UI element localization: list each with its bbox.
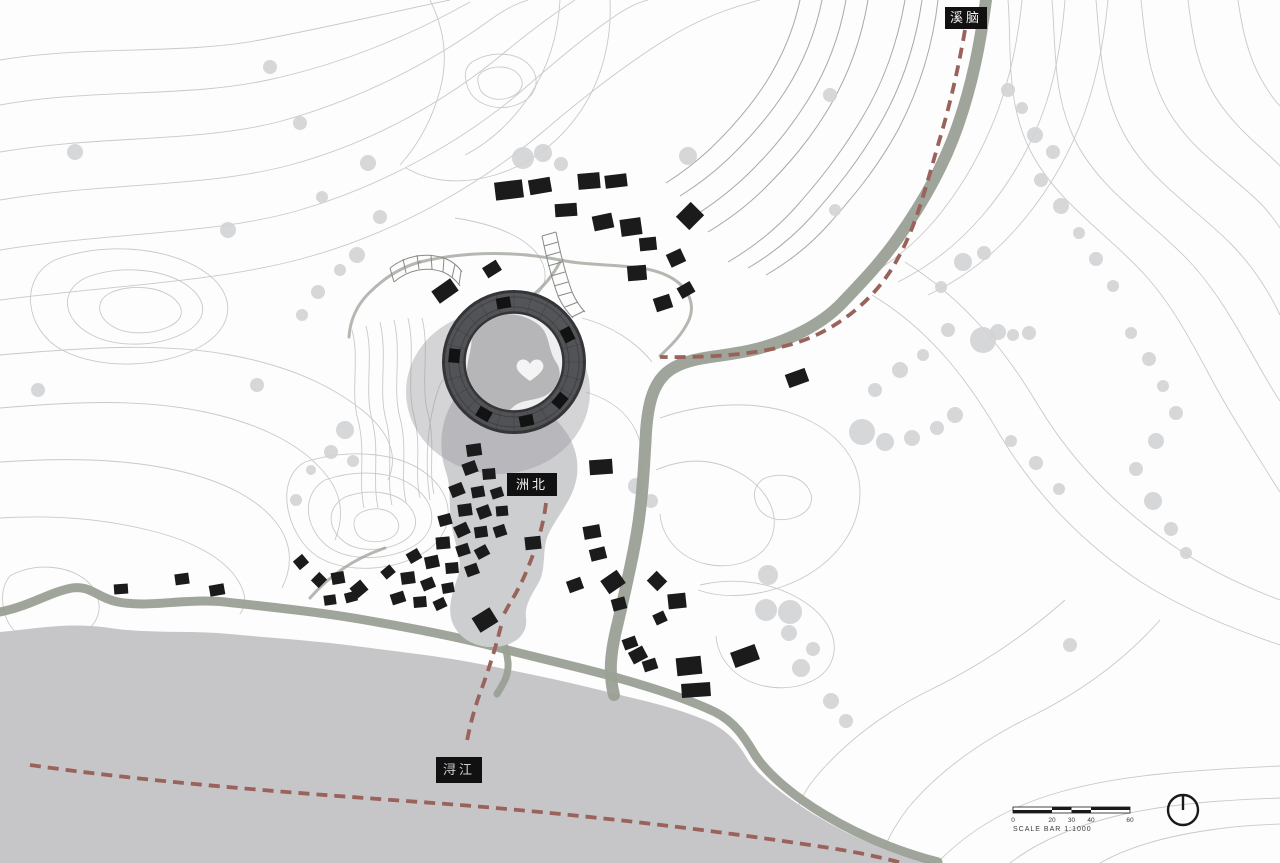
building-footprint bbox=[681, 682, 711, 698]
scalebar-tick: 20 bbox=[1048, 817, 1056, 824]
building-footprint bbox=[627, 265, 647, 282]
building-footprint bbox=[457, 503, 473, 517]
scalebar-segment bbox=[1072, 810, 1092, 813]
tree bbox=[876, 433, 894, 451]
scalebar-segment bbox=[1052, 807, 1072, 810]
building-footprint bbox=[494, 179, 524, 200]
tree bbox=[1063, 638, 1077, 652]
tree bbox=[554, 157, 568, 171]
tree bbox=[1169, 406, 1183, 420]
tree bbox=[1007, 329, 1019, 341]
tree bbox=[758, 565, 778, 585]
tree bbox=[954, 253, 972, 271]
tree bbox=[250, 378, 264, 392]
tree bbox=[31, 383, 45, 397]
tree bbox=[792, 659, 810, 677]
site-plan-page: 溪脑 洲北 浔江 SCALE BAR 1:1000 020304060 bbox=[0, 0, 1280, 863]
scalebar-tick: 40 bbox=[1087, 817, 1095, 824]
building-footprint bbox=[436, 536, 451, 549]
building-footprint bbox=[466, 443, 483, 457]
tree bbox=[904, 430, 920, 446]
building-footprint bbox=[555, 203, 578, 218]
tree bbox=[1005, 435, 1017, 447]
tree bbox=[917, 349, 929, 361]
building-footprint bbox=[331, 571, 346, 585]
building-footprint bbox=[174, 573, 189, 586]
tree bbox=[1027, 127, 1043, 143]
tree bbox=[1148, 433, 1164, 449]
building-footprint bbox=[474, 526, 488, 539]
scalebar-segment bbox=[1072, 807, 1092, 810]
building-footprint bbox=[400, 571, 416, 585]
tree bbox=[1107, 280, 1119, 292]
building-footprint bbox=[639, 237, 657, 252]
tree bbox=[1125, 327, 1137, 339]
tree bbox=[1034, 173, 1048, 187]
scalebar-segment bbox=[1052, 810, 1072, 813]
building-footprint bbox=[323, 594, 336, 606]
ring-block bbox=[448, 348, 460, 363]
label-creek-text: 溪脑 bbox=[950, 10, 982, 25]
tree bbox=[1073, 227, 1085, 239]
tree bbox=[349, 247, 365, 263]
tree bbox=[293, 116, 307, 130]
tree bbox=[534, 144, 552, 162]
building-footprint bbox=[496, 505, 509, 516]
tree bbox=[892, 362, 908, 378]
scalebar-segment bbox=[1091, 810, 1130, 813]
tree bbox=[67, 144, 83, 160]
building-footprint bbox=[441, 582, 455, 594]
tree bbox=[849, 419, 875, 445]
tree bbox=[823, 693, 839, 709]
tree bbox=[1053, 198, 1069, 214]
label-creek: 溪脑 bbox=[945, 7, 987, 29]
tree bbox=[347, 455, 359, 467]
scalebar-tick: 30 bbox=[1068, 817, 1076, 824]
tree bbox=[373, 210, 387, 224]
building-footprint bbox=[482, 468, 496, 480]
tree bbox=[1053, 483, 1065, 495]
building-footprint bbox=[524, 536, 541, 551]
tree bbox=[1142, 352, 1156, 366]
tree bbox=[1001, 83, 1015, 97]
tree bbox=[823, 88, 837, 102]
tree bbox=[360, 155, 376, 171]
tree bbox=[935, 281, 947, 293]
tree bbox=[1164, 522, 1178, 536]
building-footprint bbox=[471, 485, 486, 498]
tree bbox=[1029, 456, 1043, 470]
tree bbox=[1016, 102, 1028, 114]
tree bbox=[755, 599, 777, 621]
tree bbox=[778, 600, 802, 624]
tree bbox=[977, 246, 991, 260]
label-river: 浔江 bbox=[436, 757, 482, 783]
tree bbox=[930, 421, 944, 435]
tree bbox=[829, 204, 841, 216]
label-village-text: 洲北 bbox=[516, 477, 548, 492]
building-footprint bbox=[114, 584, 129, 595]
tree bbox=[868, 383, 882, 397]
tree bbox=[1129, 462, 1143, 476]
tree bbox=[334, 264, 346, 276]
tree bbox=[220, 222, 236, 238]
tree bbox=[806, 642, 820, 656]
building-footprint bbox=[604, 173, 627, 189]
tree bbox=[311, 285, 325, 299]
building-footprint bbox=[589, 459, 613, 476]
tree bbox=[290, 494, 302, 506]
tree bbox=[1022, 326, 1036, 340]
tree bbox=[512, 147, 534, 169]
tree bbox=[306, 465, 316, 475]
site-plan-map: 溪脑 洲北 浔江 SCALE BAR 1:1000 020304060 bbox=[0, 0, 1280, 863]
scalebar-segment bbox=[1013, 807, 1052, 810]
tree bbox=[1144, 492, 1162, 510]
tree bbox=[941, 323, 955, 337]
label-river-text: 浔江 bbox=[443, 762, 475, 777]
tree bbox=[296, 309, 308, 321]
tree bbox=[990, 324, 1006, 340]
tree bbox=[839, 714, 853, 728]
tree bbox=[324, 445, 338, 459]
building-footprint bbox=[413, 596, 427, 608]
tree bbox=[263, 60, 277, 74]
building-footprint bbox=[676, 656, 703, 677]
tree bbox=[1046, 145, 1060, 159]
tree bbox=[1180, 547, 1192, 559]
tree bbox=[781, 625, 797, 641]
tree bbox=[316, 191, 328, 203]
building-footprint bbox=[577, 172, 600, 190]
label-village: 洲北 bbox=[507, 473, 557, 496]
tree bbox=[336, 421, 354, 439]
scalebar-tick: 0 bbox=[1011, 817, 1015, 824]
scalebar-tick: 60 bbox=[1126, 817, 1134, 824]
building-footprint bbox=[445, 562, 459, 574]
building-footprint bbox=[667, 593, 686, 610]
tree bbox=[1089, 252, 1103, 266]
scalebar-segment bbox=[1091, 807, 1130, 810]
tree bbox=[947, 407, 963, 423]
building-footprint bbox=[619, 217, 642, 237]
tree bbox=[1157, 380, 1169, 392]
tree bbox=[679, 147, 697, 165]
scalebar-caption: SCALE BAR 1:1000 bbox=[1013, 826, 1092, 833]
scalebar-segment bbox=[1013, 810, 1052, 813]
